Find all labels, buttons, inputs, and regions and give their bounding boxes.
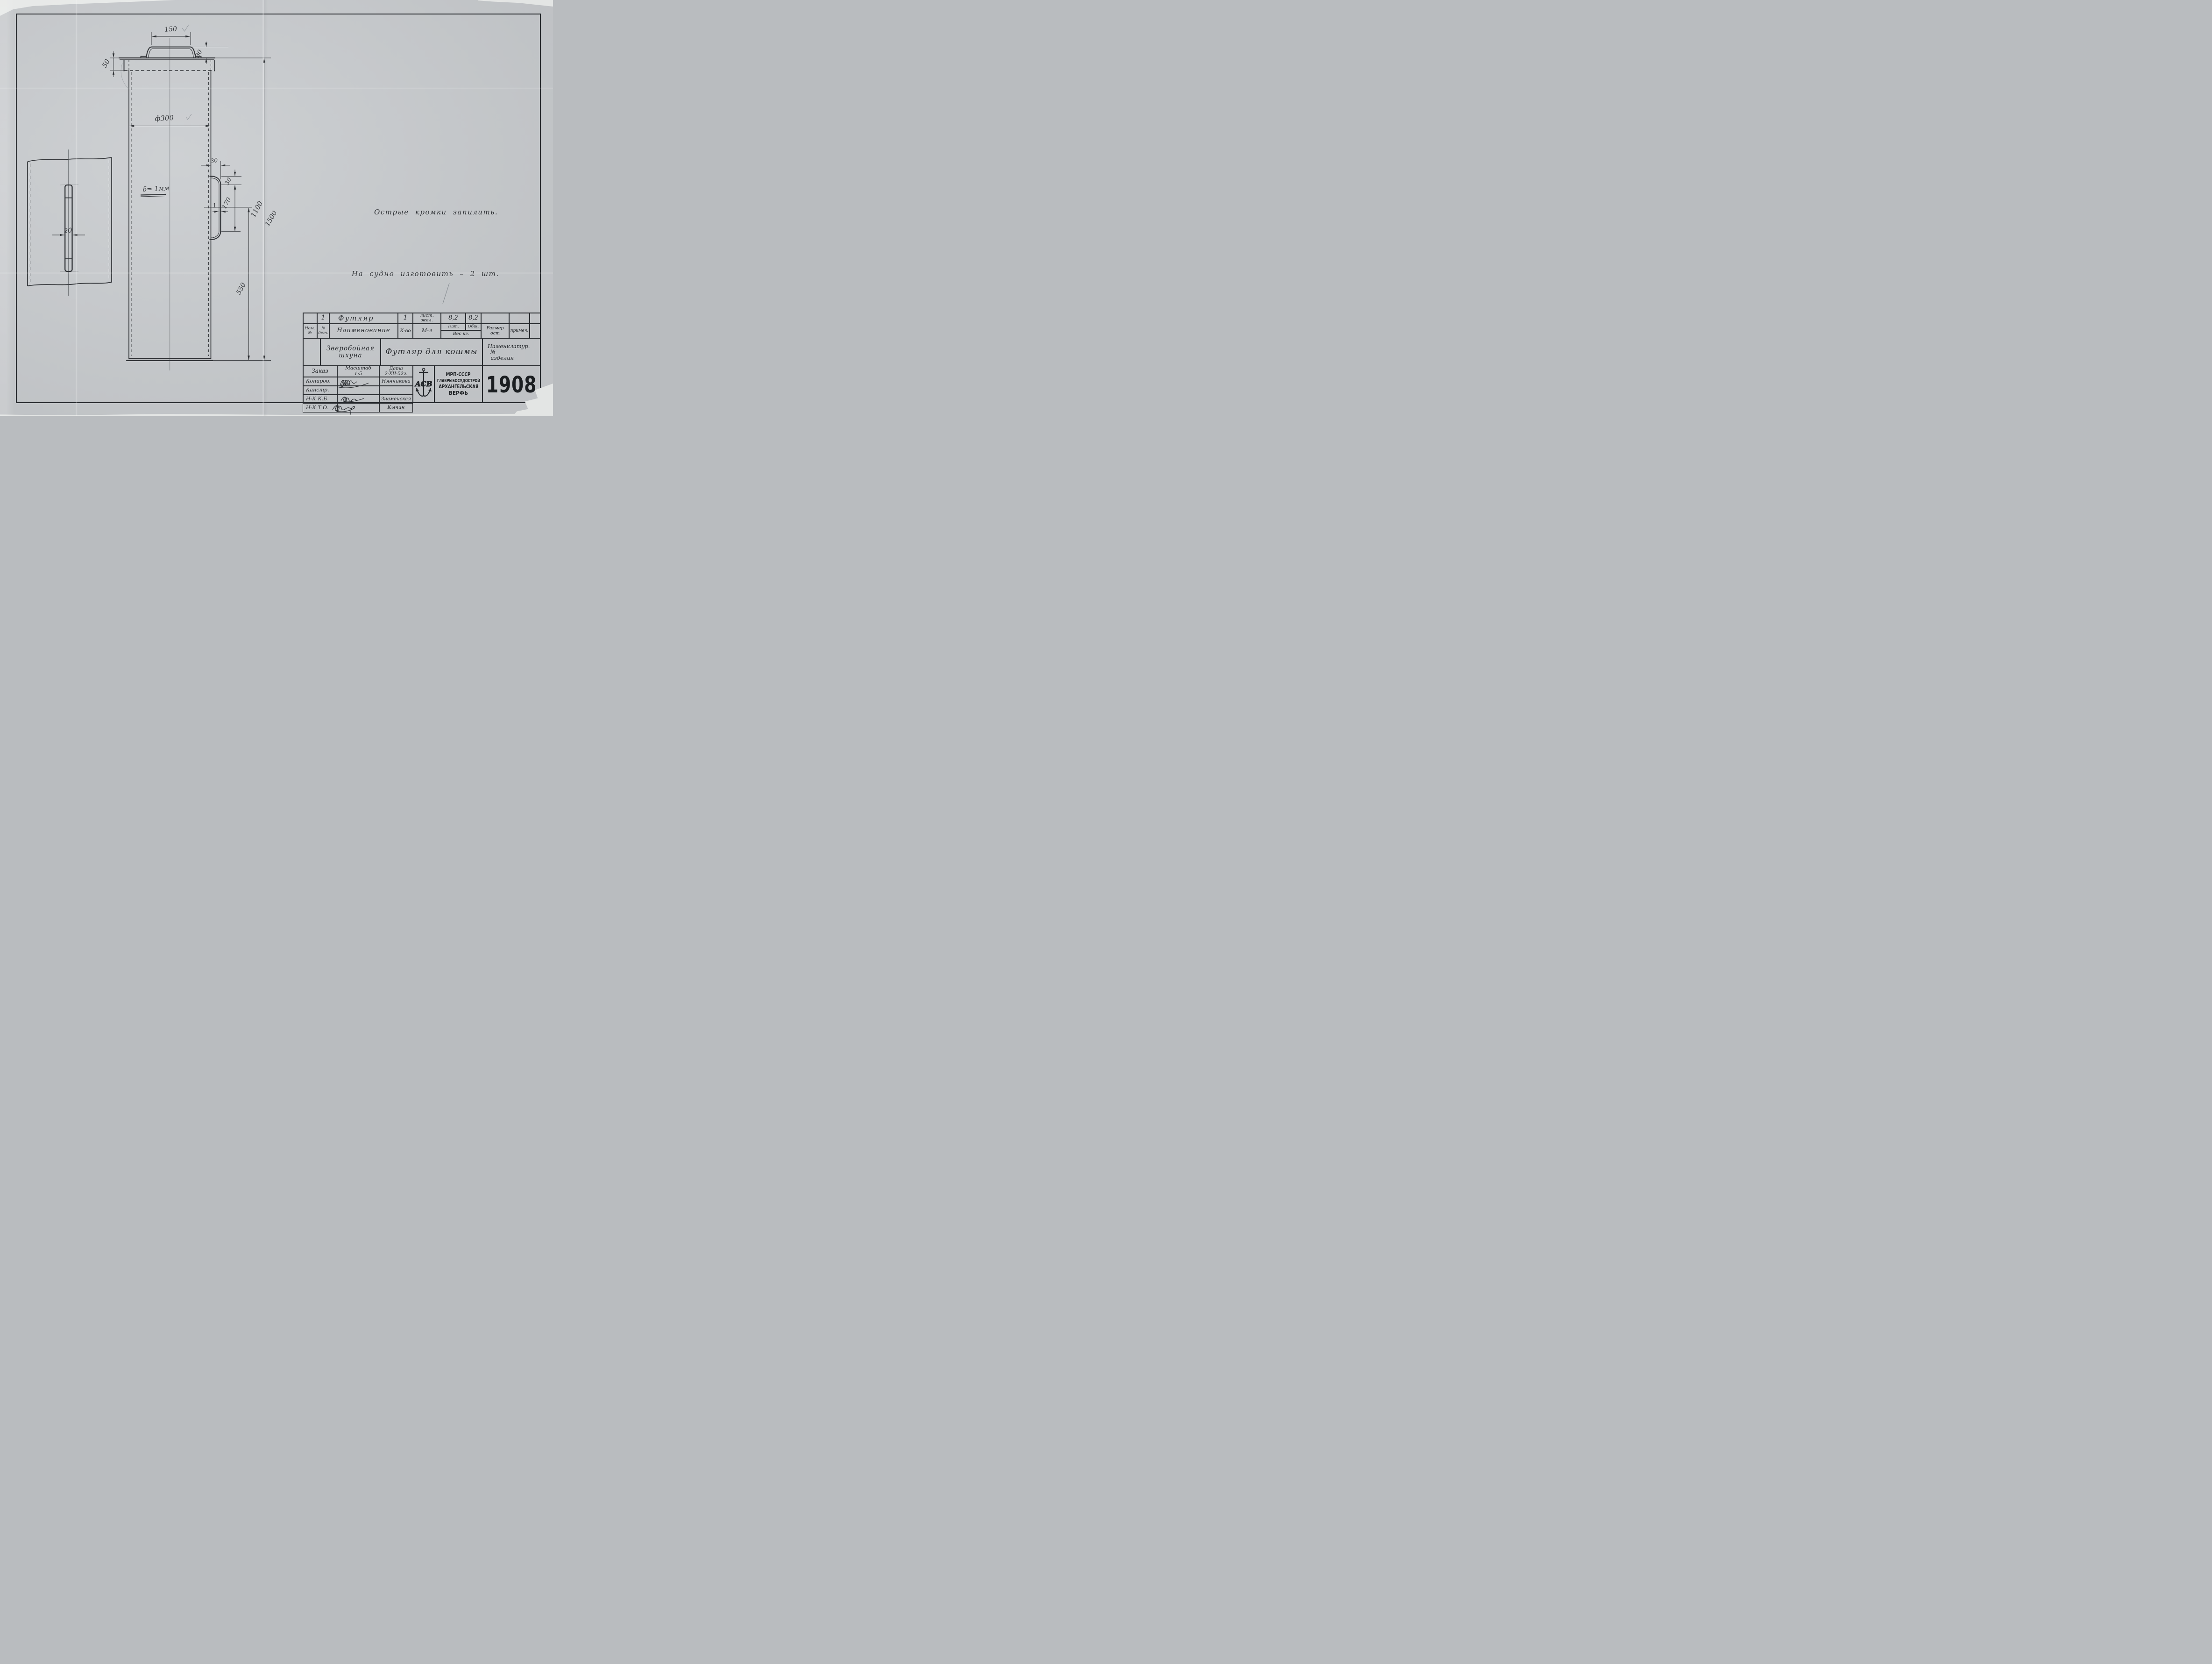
tb-date-value: 2-XII-52г. <box>385 371 408 377</box>
tb-scale: Масштаб 1:5 <box>337 366 379 377</box>
dim-1-label: 1 <box>212 201 217 209</box>
pencil-marks <box>182 25 449 304</box>
tb-cell-empty <box>303 338 320 366</box>
tb-org-l4: ВЕРФЬ <box>449 391 468 397</box>
note-make-quantity: На судно изготовить – 2 шт. <box>352 270 499 278</box>
tb-copied-by: Нянникова <box>379 377 413 386</box>
tb-material: лист. жел. <box>413 313 441 324</box>
dim-170-label: 170 <box>220 196 233 211</box>
tb-h-qty: К-во <box>398 324 413 338</box>
tb-nkto-label: Н-К Т.О. <box>303 403 337 412</box>
tb-cell-empty <box>303 313 317 324</box>
tb-signature-cell <box>337 395 379 403</box>
tb-h-det-l2: дет. <box>318 331 328 335</box>
tb-h-weight: Вес кг. <box>441 330 481 338</box>
tb-weight-total: 8,2 <box>466 313 481 324</box>
logo-letters: АСВ <box>415 380 432 388</box>
tb-date-label: Дата <box>389 366 403 371</box>
dimension-50: 50 <box>101 51 124 77</box>
blueprint-sheet: 150 30 50 ф300 δ= 1мм <box>0 0 553 416</box>
tb-cell-empty <box>530 324 541 338</box>
dim-50-label: 50 <box>101 58 112 69</box>
tb-organization: МРП-СССР ГЛАВРЫБОСУДОСТРОЙ АРХАНГЕЛЬСКАЯ… <box>434 366 482 403</box>
tb-cell-empty <box>379 386 413 395</box>
tb-org-l3: АРХАНГЕЛЬСКАЯ <box>439 384 478 390</box>
tb-signature-cell <box>337 403 379 412</box>
dim-550-label: 550 <box>235 281 248 296</box>
note-sharp-edges: Острые кромки запилить. <box>374 208 498 216</box>
tb-cell-empty <box>530 313 541 324</box>
dimension-1100: 1100 1500 <box>213 58 278 361</box>
pencil-1500-note: 1500 <box>264 209 279 228</box>
shipyard-anchor-logo: АСВ <box>414 367 433 402</box>
tb-ship: Зверобойная шхуна <box>320 338 381 366</box>
tb-nomenclature: Наменклатур. № изделия <box>482 338 541 366</box>
tb-nomenclature-l2: № <box>488 349 496 355</box>
tb-emblem-cell: АСВ <box>413 366 434 403</box>
plate-detail <box>28 149 112 296</box>
dim-20-label: 20 <box>63 227 72 235</box>
cylinder-outline <box>119 58 215 361</box>
dim-diameter-label: ф300 <box>155 114 174 123</box>
tb-nkkb-label: Н-К.К.Б. <box>303 395 337 403</box>
thickness-note: δ= 1мм <box>141 185 170 197</box>
tb-drawing-number: 1908 <box>482 366 541 403</box>
tb-part-name: Футляр <box>329 313 398 324</box>
tb-det-no: 1 <box>317 313 329 324</box>
tb-qty: 1 <box>398 313 413 324</box>
dimension-150: 150 <box>151 25 191 45</box>
dim-150-label: 150 <box>164 25 177 34</box>
tb-designed-label: Канстр. <box>303 386 337 395</box>
tb-org-l1: МРП-СССР <box>446 372 471 378</box>
tb-h-total: Общ. <box>466 324 481 330</box>
tb-material-l2: жел. <box>421 318 433 323</box>
dimension-20: 20 <box>52 227 85 235</box>
tb-h-remark: примеч. <box>509 324 530 338</box>
tb-h-nom: Ном. № <box>303 324 317 338</box>
dimension-30-foot: 30 <box>221 170 241 192</box>
tb-signature-cell <box>337 386 379 395</box>
tb-ship-l2: шхуна <box>339 352 362 359</box>
tb-h-per-item: 1шт. <box>441 324 466 330</box>
dimension-30-offset: 30 <box>201 156 230 179</box>
drawing-number: 1908 <box>486 372 537 397</box>
tb-h-material: М-л <box>413 324 441 338</box>
tb-item-name: Футляр для кошмы <box>381 338 482 366</box>
dimension-170: 170 <box>220 185 241 232</box>
tb-h-name: Наименование <box>329 324 398 338</box>
tb-nomenclature-l3: изделия <box>488 355 514 361</box>
tb-weight-each: 8,2 <box>441 313 466 324</box>
dim-1100-label: 1100 <box>250 200 264 219</box>
tb-h-size-l2: ост <box>490 331 500 336</box>
tb-cell-empty <box>509 313 530 324</box>
tb-h-nom-l2: № <box>308 331 312 335</box>
tb-ship-l1: Зверобойная <box>326 345 375 352</box>
tb-h-size: Размер ост <box>481 324 509 338</box>
lid-handle <box>141 47 201 58</box>
dimension-550: 550 <box>204 207 252 360</box>
tb-nkkb-by: Знаменская <box>379 395 413 403</box>
tb-order: Заказ <box>303 366 337 377</box>
tb-org-l2: ГЛАВРЫБОСУДОСТРОЙ <box>437 379 480 384</box>
tb-date: Дата 2-XII-52г. <box>379 366 413 377</box>
tb-cell-empty <box>481 313 509 324</box>
dim-30-offset-label: 30 <box>210 156 218 164</box>
tb-copied-label: Копиров. <box>303 377 337 386</box>
dimension-30-top: 30 <box>191 42 228 64</box>
tb-h-det: № дет. <box>317 324 329 338</box>
tb-nkto-by: Кычин <box>379 403 413 412</box>
tb-signature-cell <box>337 377 379 386</box>
tb-scale-value: 1:5 <box>354 371 362 377</box>
svg-text:δ= 1мм: δ= 1мм <box>142 185 169 193</box>
tb-h-size-l1: Размер <box>487 326 504 331</box>
